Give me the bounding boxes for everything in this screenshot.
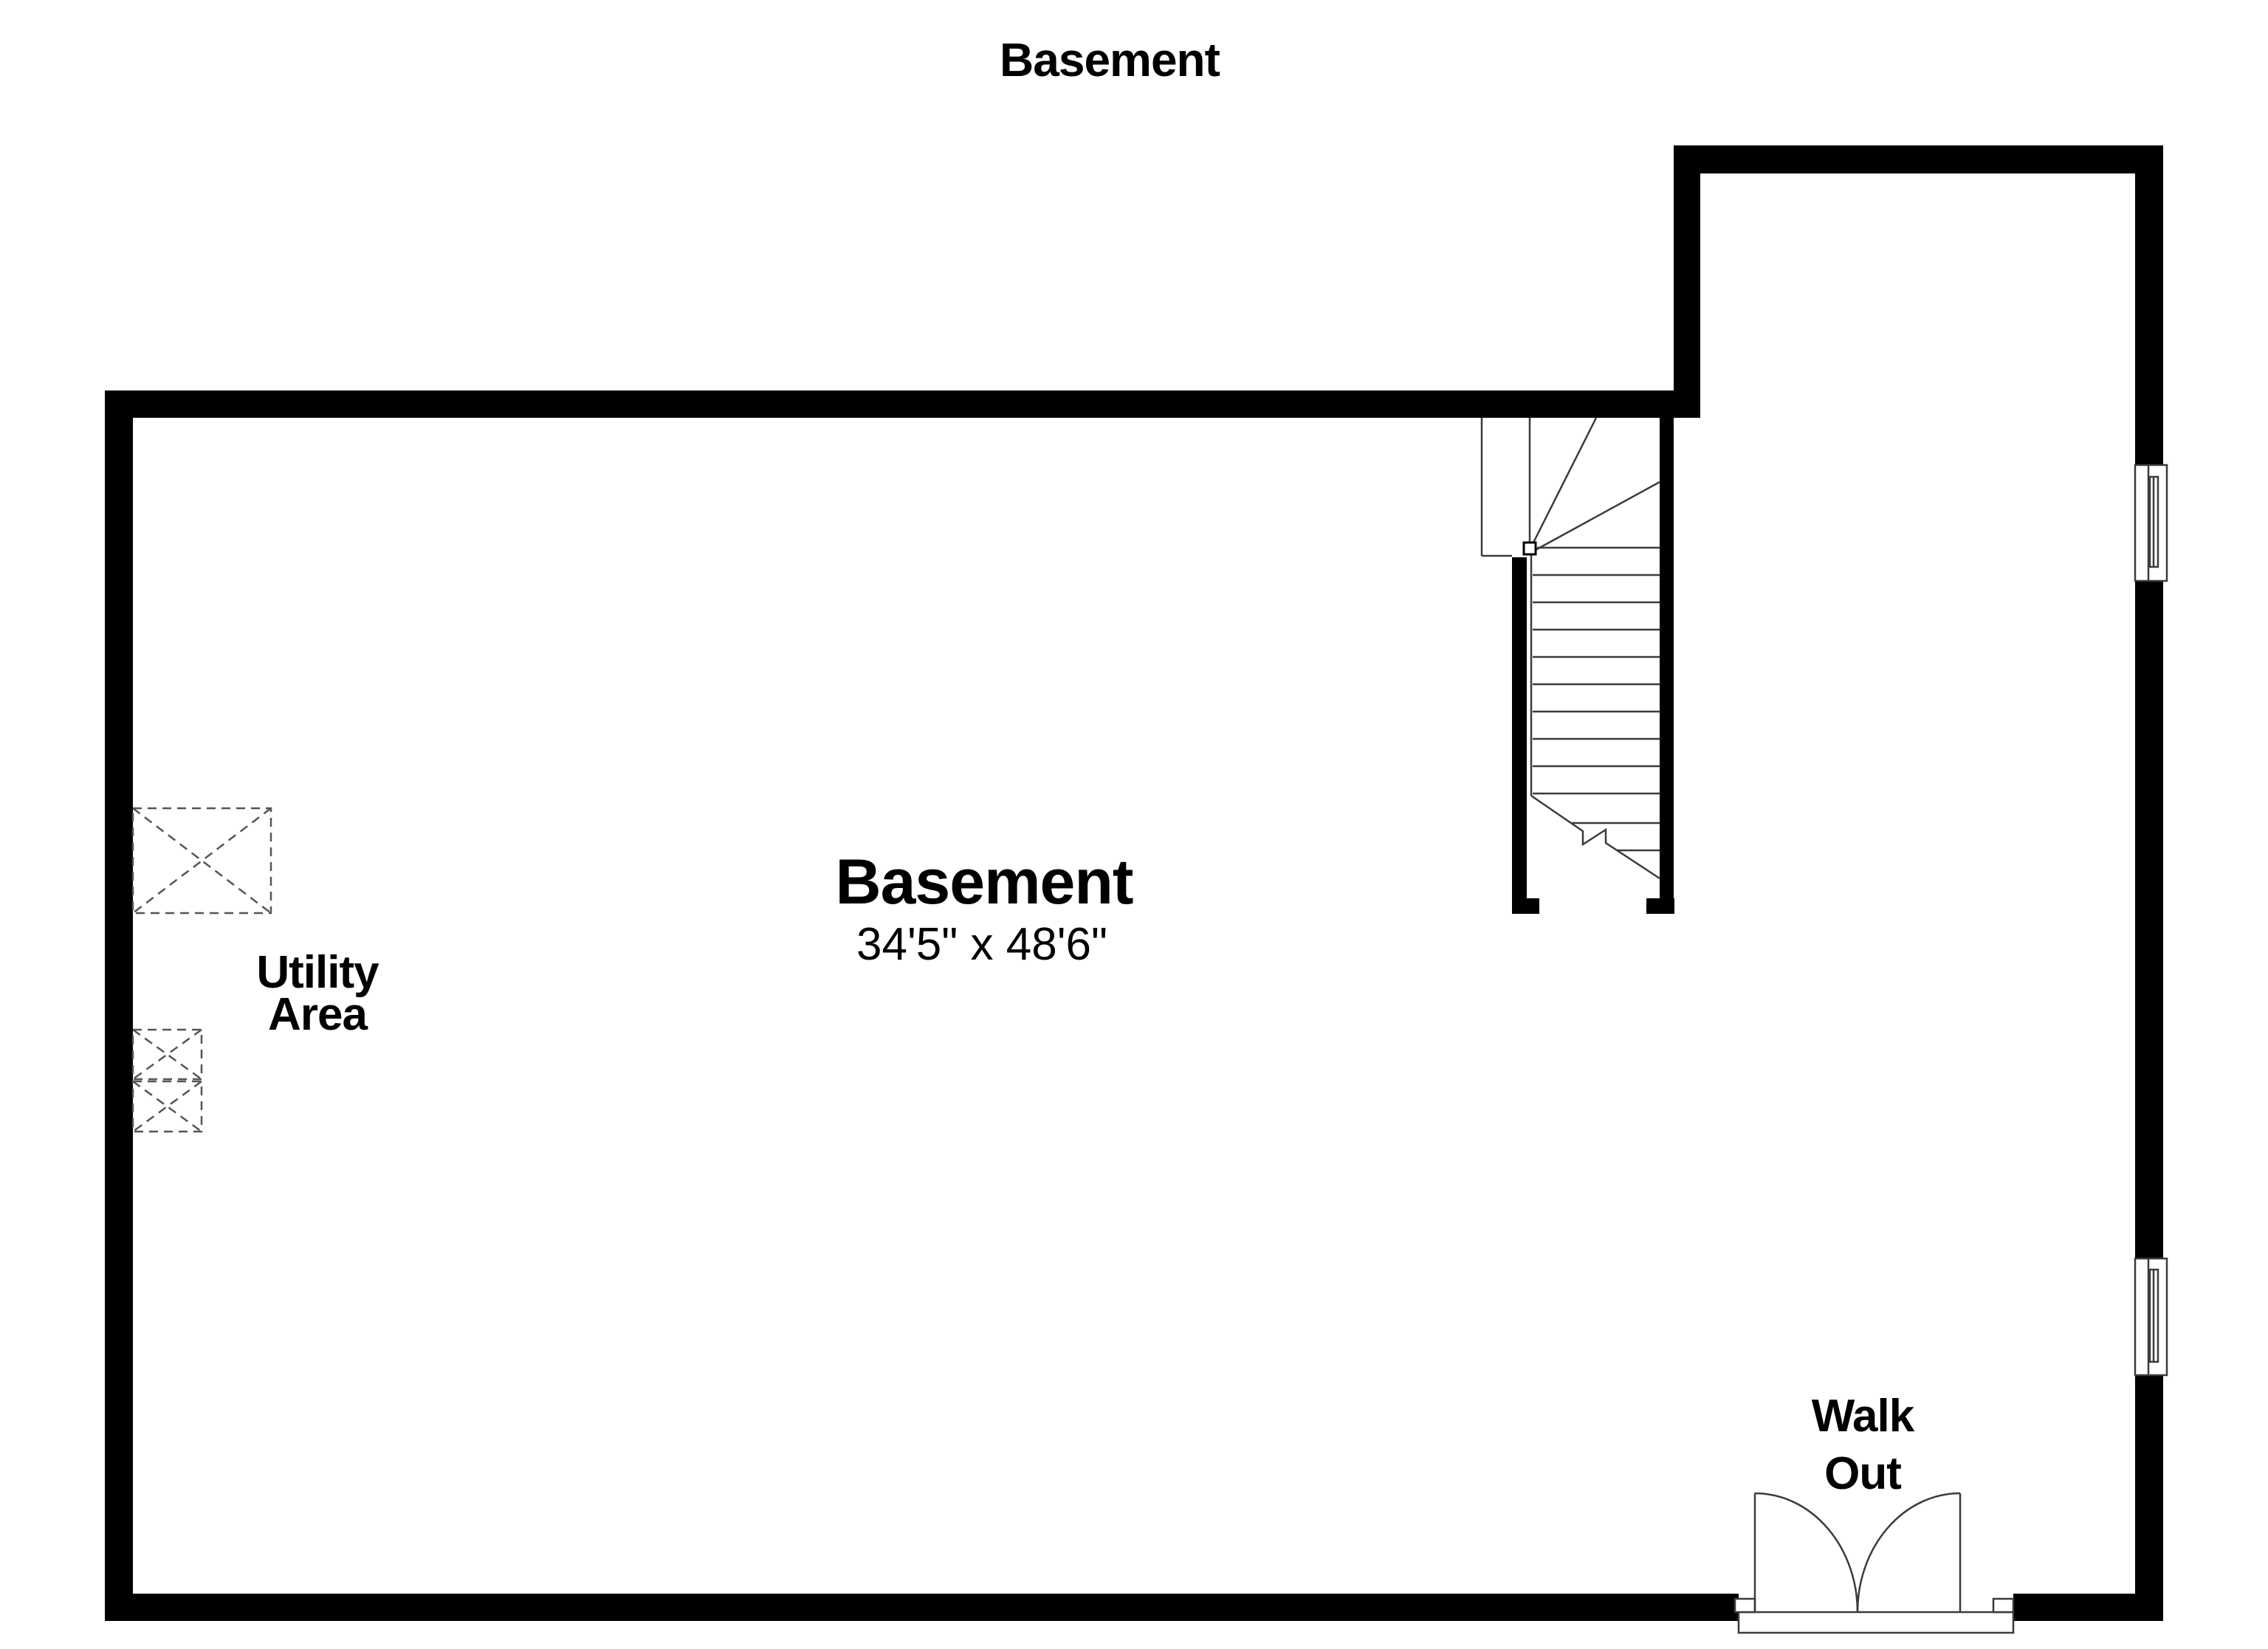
fixture-diagonal (133, 808, 271, 913)
walkout-door (1735, 1493, 2013, 1633)
room-name-label: Basement (835, 846, 1133, 919)
fixture-diagonal (133, 1081, 202, 1132)
fixture-outline (133, 808, 271, 913)
stair-walls (1512, 418, 1674, 914)
wall-right-mid (2135, 581, 2163, 1259)
fixture-diagonal (133, 1030, 202, 1079)
door-swing-left (1755, 1493, 1858, 1612)
stair-wall-right (1660, 418, 1674, 898)
utility-area-label: Utility Area (256, 951, 378, 1036)
door-jamb-right (1993, 1599, 2013, 1612)
walk-out-label-line2: Out (1812, 1445, 1914, 1503)
walk-out-label-line1: Walk (1812, 1388, 1914, 1445)
stair-newel-post (1524, 543, 1536, 554)
stair-treads (1533, 548, 1660, 850)
wall-right-lower (2135, 1375, 2163, 1621)
wall-top-main (105, 390, 1700, 418)
window-lower (2135, 1259, 2167, 1375)
wall-bottom-left (105, 1594, 1739, 1621)
floorplan-page: Basement (0, 0, 2268, 1649)
stair-wall-left (1512, 557, 1527, 898)
wall-notch-left (1674, 145, 1700, 418)
fixture-diagonal (133, 1081, 202, 1132)
fixture-diagonal (133, 808, 271, 913)
stair-wall-left-foot (1512, 898, 1539, 914)
wall-bottom-right (2013, 1594, 2163, 1621)
fixture-diagonal (133, 1030, 202, 1079)
winder-line-1 (1531, 418, 1596, 547)
utility-area-label-line1: Utility (256, 951, 378, 994)
room-dimensions-label: 34'5" x 48'6" (856, 918, 1107, 971)
stair-break-line (1531, 796, 1660, 878)
door-jamb-left (1735, 1599, 1755, 1612)
door-swing-right (1858, 1493, 1960, 1612)
utility-fixture-small-2 (133, 1081, 202, 1132)
stair-winder-fan (1531, 418, 1660, 550)
fixture-outline (133, 1030, 202, 1079)
wall-notch-top (1674, 145, 2163, 173)
utility-fixtures (133, 808, 271, 1132)
floorplan-drawing (0, 0, 2268, 1649)
window-upper (2135, 465, 2167, 581)
stair-wall-right-foot (1646, 898, 1674, 914)
fixture-outline (133, 1081, 202, 1132)
walk-out-label: Walk Out (1812, 1388, 1914, 1502)
winder-line-2 (1536, 482, 1660, 550)
wall-left (105, 390, 133, 1621)
utility-area-label-line2: Area (256, 994, 378, 1036)
door-threshold (1739, 1612, 2013, 1633)
wall-right-upper (2135, 145, 2163, 465)
staircase (1482, 418, 1674, 914)
utility-fixture-small-1 (133, 1030, 202, 1079)
utility-fixture-large (133, 808, 271, 913)
